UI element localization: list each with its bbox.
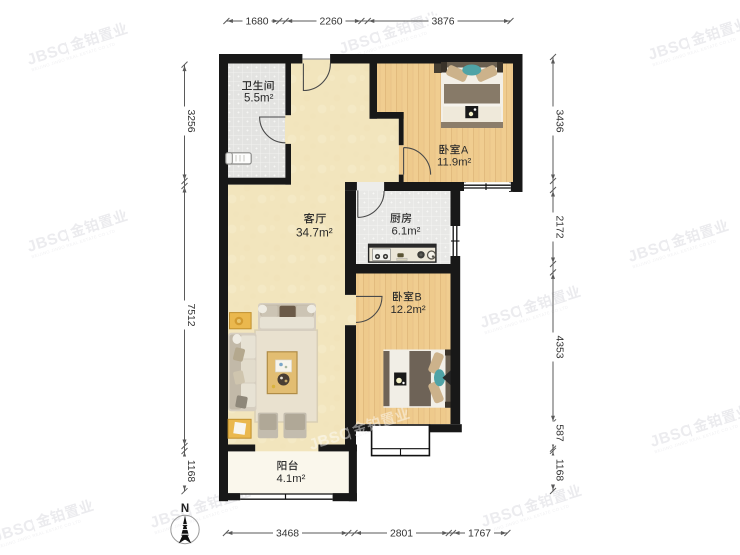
svg-text:3876: 3876 xyxy=(431,17,454,28)
svg-text:6.1m²: 6.1m² xyxy=(392,226,421,238)
svg-text:1767: 1767 xyxy=(468,529,491,540)
svg-text:1168: 1168 xyxy=(185,460,196,483)
svg-text:B: B xyxy=(415,292,422,304)
svg-text:1168: 1168 xyxy=(554,459,565,482)
svg-text:4353: 4353 xyxy=(554,335,565,358)
svg-text:2801: 2801 xyxy=(390,529,413,540)
svg-text:A: A xyxy=(461,145,469,157)
svg-text:3468: 3468 xyxy=(276,529,299,540)
svg-text:1680: 1680 xyxy=(245,17,268,28)
svg-text:11.9m²: 11.9m² xyxy=(437,157,472,169)
svg-text:7512: 7512 xyxy=(185,303,196,326)
svg-text:2260: 2260 xyxy=(319,17,342,28)
svg-text:N: N xyxy=(181,503,189,515)
svg-text:2172: 2172 xyxy=(554,215,565,238)
svg-text:3256: 3256 xyxy=(185,109,196,132)
svg-text:5.5m²: 5.5m² xyxy=(244,93,274,105)
svg-text:587: 587 xyxy=(554,424,565,442)
svg-text:34.7m²: 34.7m² xyxy=(296,226,333,240)
svg-text:3436: 3436 xyxy=(554,109,565,132)
svg-text:4.1m²: 4.1m² xyxy=(277,473,306,485)
svg-text:12.2m²: 12.2m² xyxy=(391,304,426,316)
